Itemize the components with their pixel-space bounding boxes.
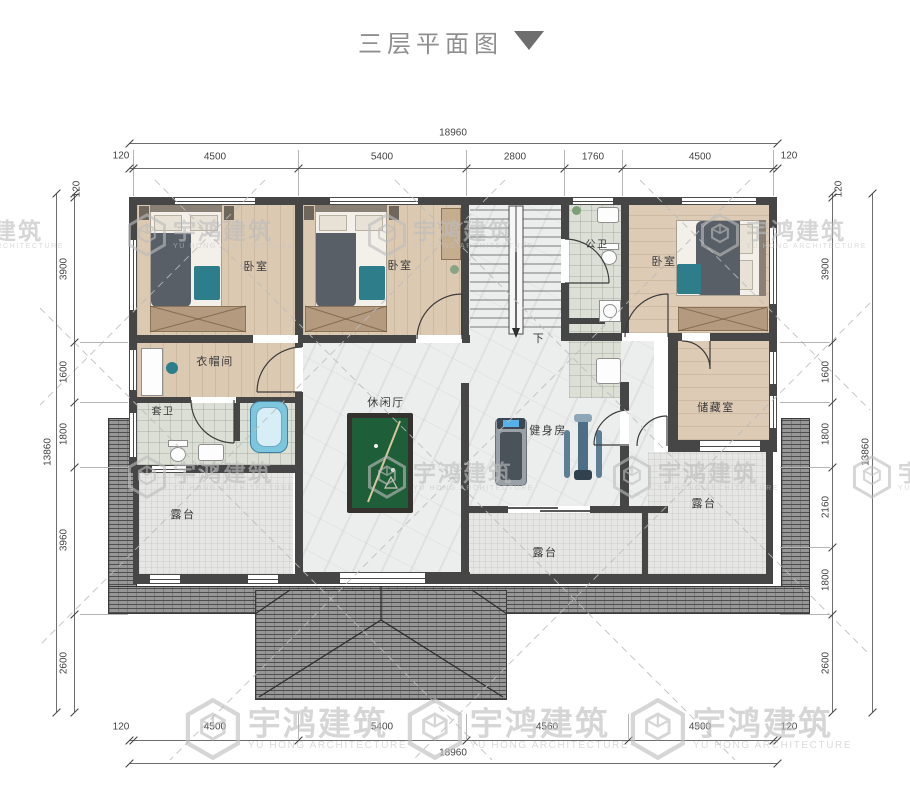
dim-top-6: 120 bbox=[781, 151, 798, 162]
room-label-cloakroom: 衣帽间 bbox=[196, 353, 234, 369]
blanket bbox=[359, 266, 385, 300]
door-gap-bed2 bbox=[416, 335, 462, 343]
dim-bottom-4: 4500 bbox=[689, 722, 711, 733]
floor-plan-page: 三层平面图 bbox=[0, 0, 910, 802]
roof-porch bbox=[255, 590, 507, 700]
dim-left-2: 1600 bbox=[59, 361, 70, 383]
dim-top-4: 1760 bbox=[582, 152, 604, 163]
room-label-public-bath: 公卫 bbox=[586, 236, 609, 251]
wall-bed2-stair bbox=[461, 197, 469, 341]
window bbox=[330, 197, 418, 205]
duvet bbox=[696, 221, 740, 295]
wall-bed1-bed2 bbox=[295, 197, 303, 341]
dim-top-0: 120 bbox=[113, 151, 130, 162]
watermark: 宇鸿建筑YU HONG ARCHITECTURE bbox=[628, 696, 852, 762]
window bbox=[769, 396, 777, 428]
dim-line bbox=[832, 193, 833, 712]
dim-top-5: 4500 bbox=[689, 152, 711, 163]
dim-right-6: 2600 bbox=[821, 652, 832, 674]
stair-down-label: 下 bbox=[533, 330, 546, 346]
wall-storage-top bbox=[710, 333, 777, 341]
dim-bottom-2: 5400 bbox=[371, 722, 393, 733]
pool-table-felt bbox=[352, 418, 408, 508]
dim-line bbox=[56, 193, 57, 712]
room-label-bedroom-left: 卧室 bbox=[244, 258, 269, 274]
door-gap-bed3 bbox=[622, 333, 668, 341]
wall-hall-gym bbox=[461, 383, 469, 584]
page-title: 三层平面图 bbox=[358, 24, 503, 59]
sliding-door bbox=[340, 572, 425, 584]
dim-line bbox=[872, 193, 873, 712]
sink bbox=[597, 207, 619, 223]
dim-bottom-5: 120 bbox=[781, 722, 798, 733]
wardrobe bbox=[150, 306, 246, 332]
window bbox=[129, 350, 137, 390]
wall-bed3-bottom-b bbox=[668, 333, 682, 341]
dim-bottom-3: 4560 bbox=[536, 722, 558, 733]
slider-leaf bbox=[508, 507, 558, 509]
window bbox=[248, 574, 278, 584]
wall-terraceR-right bbox=[766, 452, 773, 584]
duvet bbox=[151, 233, 191, 307]
window bbox=[150, 574, 180, 584]
gym-machine-seat bbox=[574, 470, 592, 480]
dim-top-total: 18960 bbox=[439, 128, 467, 139]
window bbox=[129, 413, 137, 457]
room-label-terrace-right: 露台 bbox=[692, 495, 717, 511]
dim-left-5: 2600 bbox=[59, 652, 70, 674]
floor-terrace-right bbox=[648, 452, 766, 574]
dim-bottom-1: 4500 bbox=[204, 722, 226, 733]
window bbox=[700, 440, 760, 452]
headboard bbox=[315, 205, 387, 212]
dim-right-0: 120 bbox=[834, 181, 845, 198]
dim-line bbox=[129, 168, 777, 169]
wall-terraceL-left bbox=[133, 473, 139, 584]
dim-left-0: 120 bbox=[72, 181, 83, 198]
washer-drum bbox=[603, 304, 617, 318]
dim-right-5: 1800 bbox=[821, 569, 832, 591]
door-gap-public-bath bbox=[561, 239, 569, 283]
pillow bbox=[190, 215, 218, 231]
nightstand bbox=[389, 206, 399, 220]
pillow bbox=[319, 215, 347, 231]
wardrobe bbox=[305, 306, 387, 332]
dim-right-2: 1600 bbox=[821, 361, 832, 383]
window bbox=[175, 197, 255, 205]
pool-ball bbox=[391, 468, 395, 472]
door-gap-suite-bath bbox=[191, 397, 236, 403]
plant bbox=[572, 206, 581, 215]
window bbox=[152, 465, 186, 473]
pillow bbox=[355, 215, 383, 231]
room-label-bedroom-right: 卧室 bbox=[652, 253, 677, 269]
window bbox=[129, 240, 137, 310]
wall-bath-bed3 bbox=[621, 197, 629, 341]
room-label-leisure-hall: 休闲厅 bbox=[367, 394, 405, 410]
window bbox=[769, 228, 777, 304]
pillow bbox=[154, 215, 182, 231]
dim-left-1: 3900 bbox=[59, 258, 70, 280]
wall-terraceR-bottom bbox=[648, 574, 773, 584]
yuhong-logo-icon bbox=[628, 696, 688, 762]
dim-right-4: 2160 bbox=[821, 496, 832, 518]
roof-right bbox=[781, 418, 810, 614]
window bbox=[573, 197, 613, 205]
floor-storage bbox=[678, 341, 769, 440]
laundry-sink bbox=[596, 358, 621, 384]
dim-right-1: 3900 bbox=[821, 258, 832, 280]
blanket bbox=[677, 264, 701, 294]
wall-tub-divider bbox=[234, 399, 240, 441]
dim-bottom-0: 120 bbox=[113, 722, 130, 733]
vanity-desk bbox=[141, 348, 163, 396]
treadmill-belt bbox=[500, 432, 522, 480]
room-label-terrace-left: 露台 bbox=[171, 506, 196, 522]
dim-left-total: 13860 bbox=[43, 438, 54, 466]
dim-top-1: 4500 bbox=[204, 152, 226, 163]
wall-storage-left bbox=[668, 341, 678, 452]
treadmill-screen bbox=[503, 420, 519, 427]
dim-top-3: 2800 bbox=[504, 152, 526, 163]
window bbox=[682, 197, 756, 205]
desk bbox=[441, 208, 461, 260]
dim-top-2: 5400 bbox=[371, 152, 393, 163]
room-label-terrace-mid: 露台 bbox=[533, 544, 558, 560]
headboard bbox=[150, 205, 222, 212]
slider-leaf bbox=[540, 510, 590, 512]
nightstand bbox=[139, 206, 149, 220]
room-label-bedroom-mid: 卧室 bbox=[388, 257, 413, 273]
wall-terraceM-bottom bbox=[461, 574, 648, 584]
sink bbox=[198, 444, 224, 461]
dim-left-4: 3960 bbox=[59, 529, 70, 551]
door-gap-gym-terrace bbox=[620, 410, 629, 446]
dim-right-3: 1800 bbox=[821, 423, 832, 445]
stool bbox=[166, 362, 178, 374]
room-label-suite-bath: 套卫 bbox=[152, 403, 175, 418]
duvet bbox=[316, 233, 356, 307]
wall-bed3-bottom-a bbox=[563, 333, 622, 341]
blanket bbox=[194, 266, 220, 300]
toilet-tank bbox=[168, 440, 188, 447]
plant bbox=[450, 265, 459, 274]
dim-line bbox=[129, 763, 777, 764]
bathtub-inner bbox=[256, 407, 282, 447]
room-label-storage: 储藏室 bbox=[697, 399, 735, 415]
wardrobe bbox=[678, 307, 768, 331]
collapse-arrow-icon[interactable] bbox=[514, 31, 544, 50]
wall-terraceM-right bbox=[642, 513, 648, 574]
nightstand bbox=[224, 206, 234, 220]
door-gap-storage bbox=[682, 333, 710, 341]
dim-left-3: 1800 bbox=[59, 423, 70, 445]
dim-line bbox=[129, 740, 777, 741]
gym-machine-head bbox=[574, 414, 592, 422]
room-label-gym: 健身房 bbox=[529, 422, 567, 438]
window bbox=[769, 352, 777, 384]
dim-bottom-total: 18960 bbox=[439, 748, 467, 759]
dim-line bbox=[74, 193, 75, 712]
toilet-bowl bbox=[170, 447, 186, 462]
door-gap-bed1 bbox=[253, 335, 298, 343]
watermark: 宇鸿建筑YU HONG ARCHITECTURE bbox=[0, 212, 64, 258]
dim-right-total: 13860 bbox=[861, 438, 872, 466]
toilet-bowl bbox=[601, 250, 617, 265]
nightstand bbox=[304, 206, 314, 220]
dim-line bbox=[129, 143, 777, 144]
gym-machine-rail bbox=[596, 430, 602, 478]
door-gap-cloak bbox=[295, 347, 303, 392]
headboard bbox=[759, 220, 766, 296]
wall-gym-right bbox=[620, 382, 629, 513]
floor-terrace-left bbox=[139, 473, 293, 574]
pool-ball bbox=[374, 444, 378, 448]
